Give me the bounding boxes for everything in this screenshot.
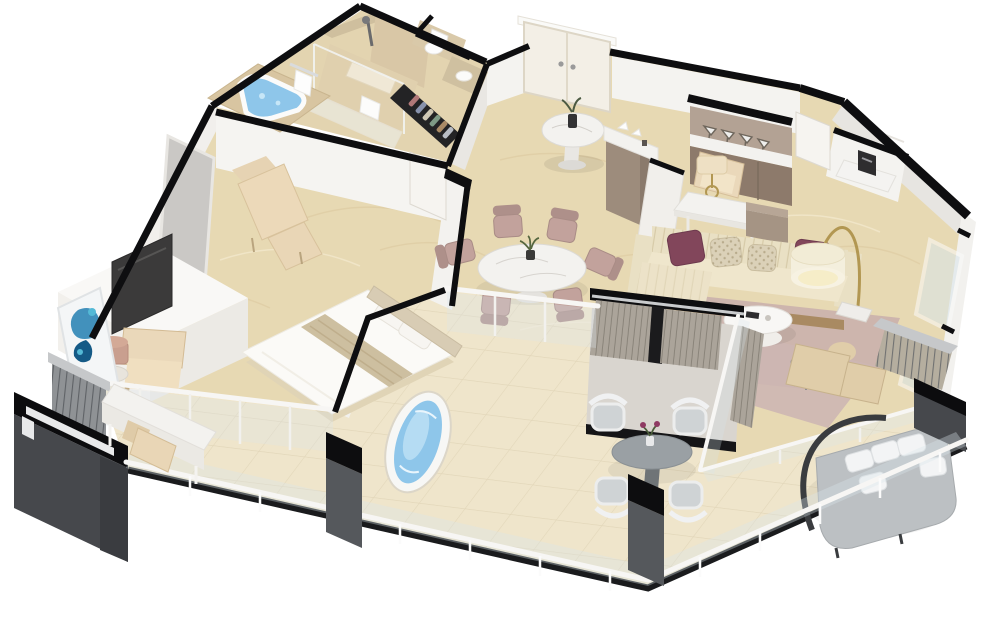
decor-cup — [642, 140, 647, 146]
plum-pillow — [666, 229, 705, 266]
table-lamp-shade — [697, 156, 727, 174]
vase — [568, 114, 577, 128]
curtain-pleats — [590, 300, 654, 362]
vanity-sink — [456, 71, 472, 81]
dining-chair — [493, 204, 523, 238]
artwork-dot-teal — [77, 349, 83, 355]
door-handle-icon — [570, 64, 575, 69]
pillar-left — [326, 432, 362, 548]
curtain-pleats — [660, 309, 722, 370]
arc-lamp-shade-top — [791, 243, 845, 265]
centerpiece-pot — [526, 250, 535, 260]
arc-lamp-glow — [798, 270, 838, 286]
flower — [654, 421, 660, 427]
coffee-table-bowl — [765, 315, 771, 321]
chaise-ottoman — [840, 362, 886, 404]
jacuzzi-bubble — [259, 93, 265, 99]
jacuzzi-bubble — [276, 101, 281, 106]
shower-head-icon — [362, 16, 370, 24]
floorplan-svg: 3D isometric cutaway floor plan of a one… — [0, 0, 1000, 636]
bedroom-armchair — [120, 328, 186, 392]
parapet-face-dark — [100, 456, 128, 562]
pillow-pattern — [747, 244, 777, 272]
pillow-pattern — [710, 237, 743, 268]
foyer-table-base — [558, 160, 586, 170]
flower — [640, 422, 646, 428]
door-handle-icon — [558, 61, 563, 66]
pillar-right — [628, 474, 664, 586]
floorplan-render: 3D isometric cutaway floor plan of a one… — [0, 0, 1000, 636]
dining-chair — [546, 207, 579, 243]
artwork-dot-teal — [88, 308, 96, 316]
flower-vase — [646, 436, 654, 446]
